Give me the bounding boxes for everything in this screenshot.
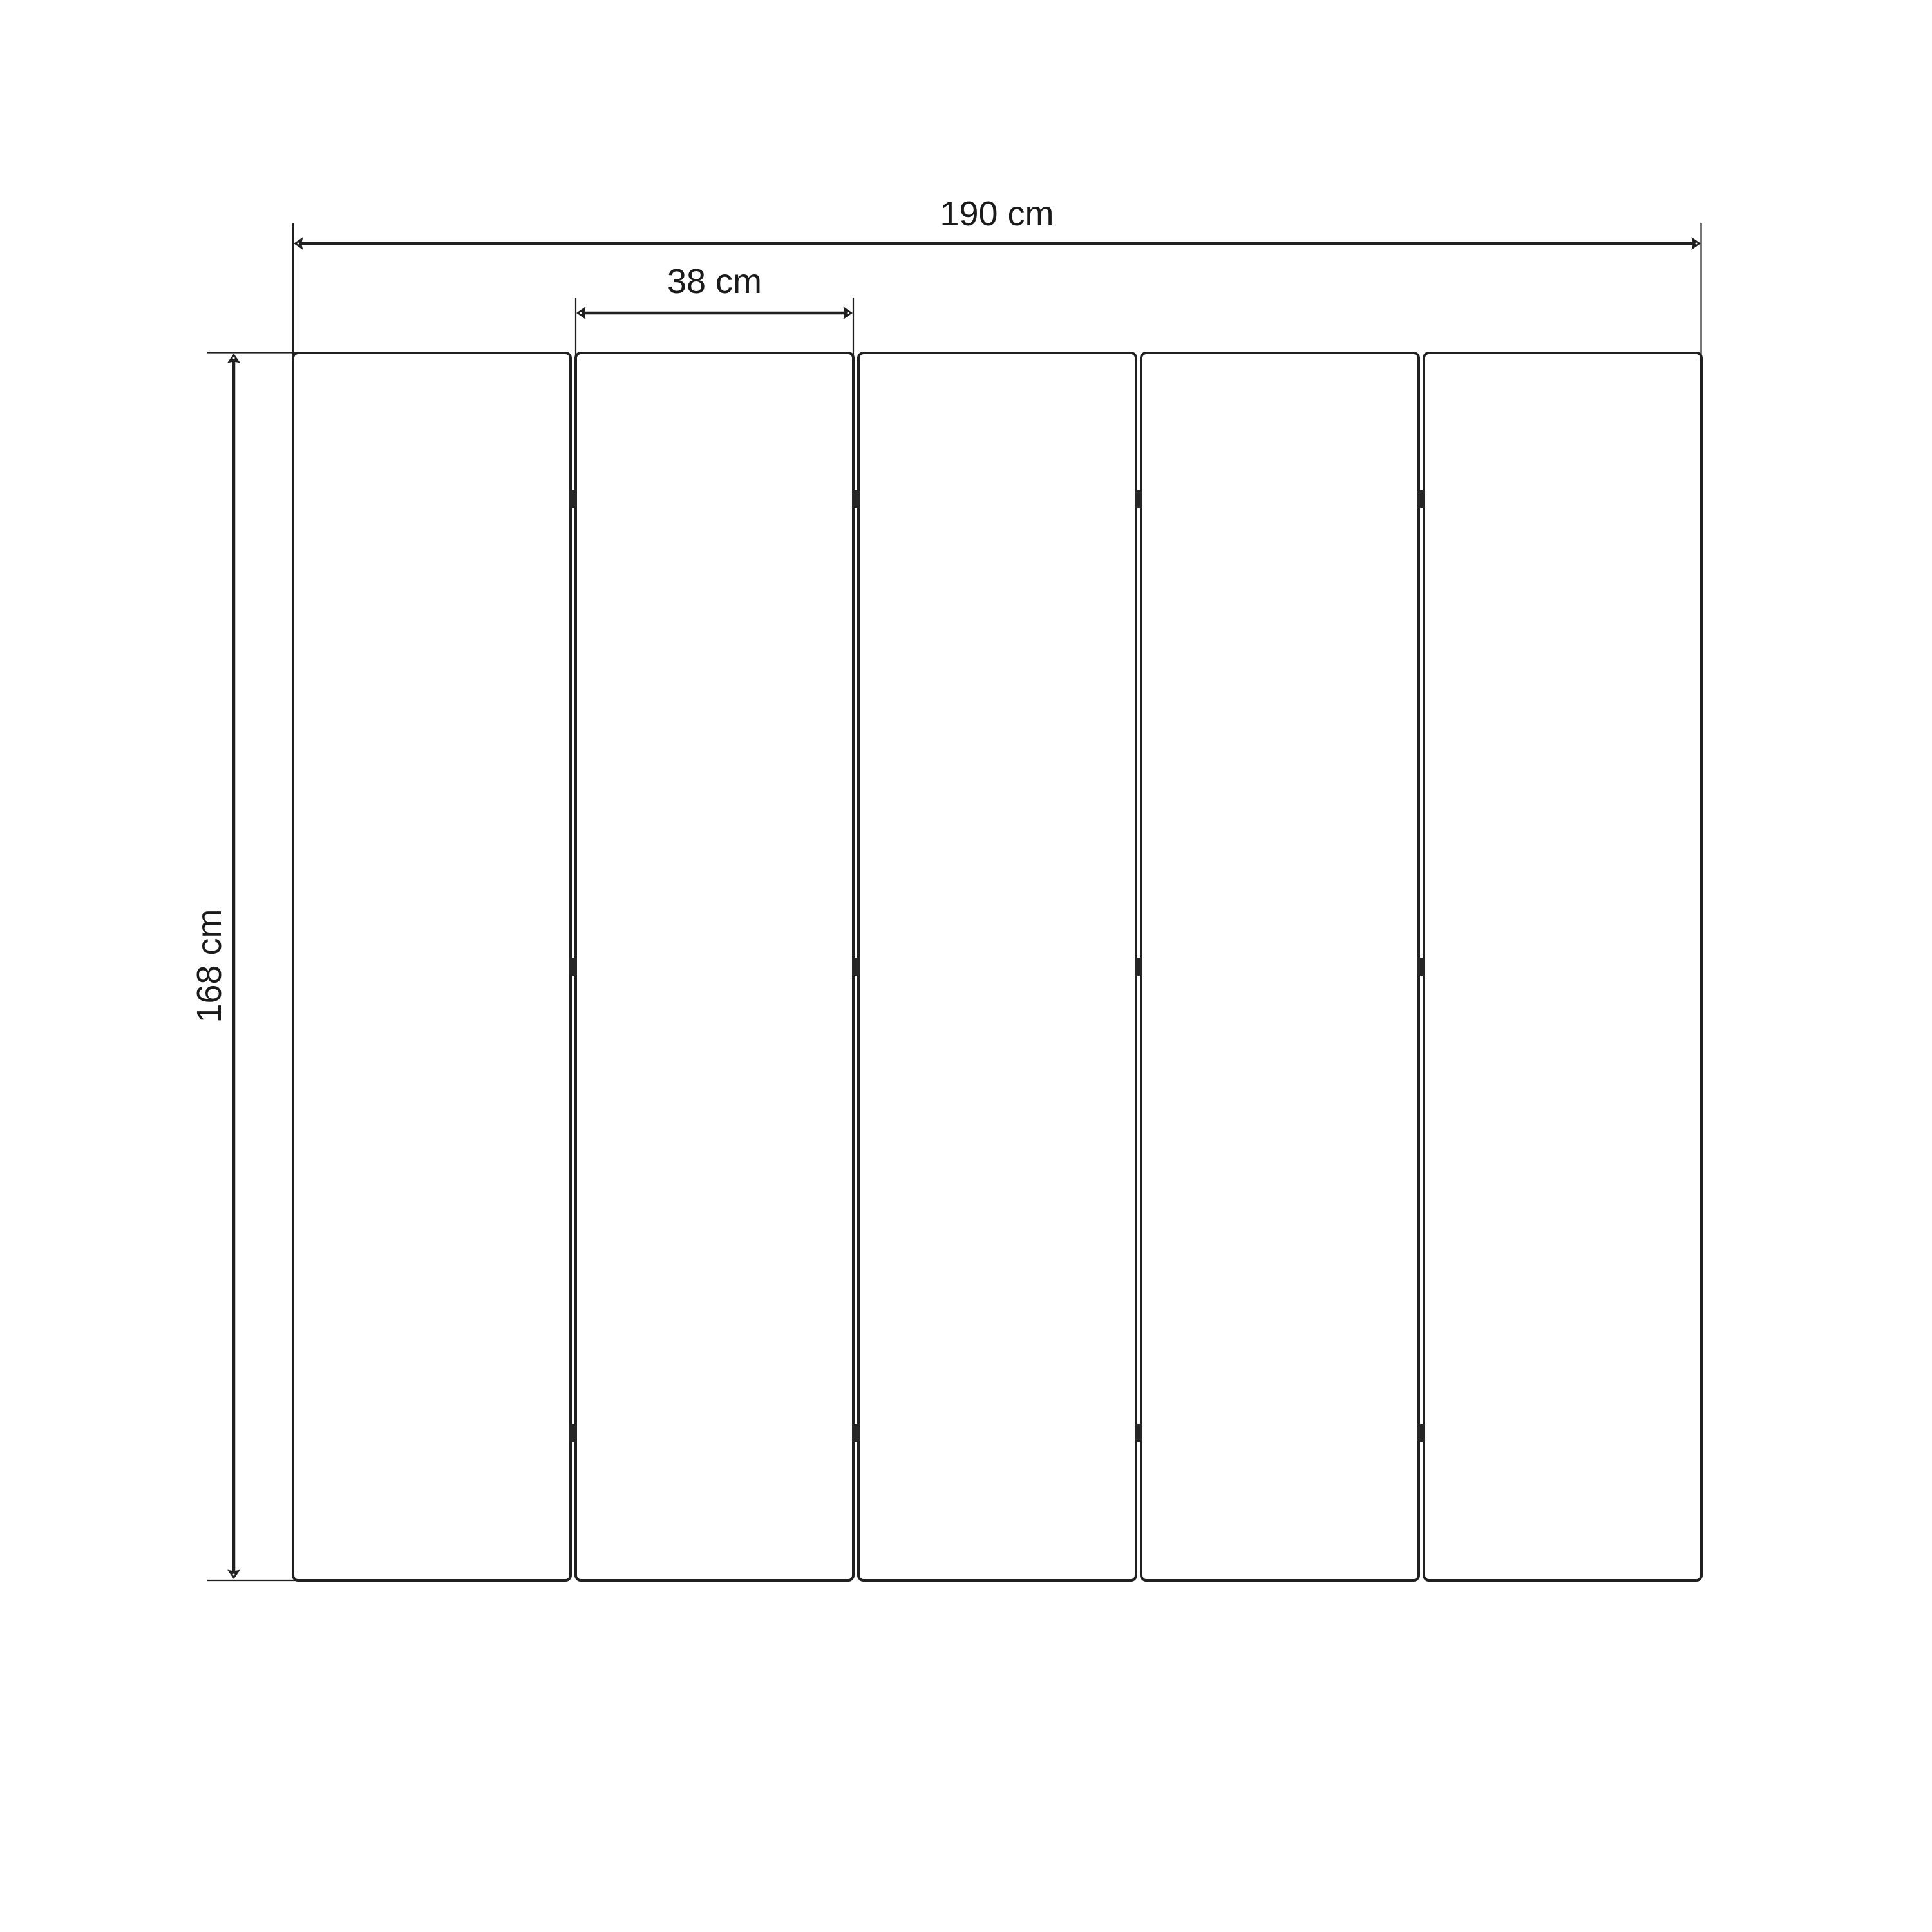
svg-text:168 cm: 168 cm [190, 909, 229, 1023]
svg-text:38 cm: 38 cm [667, 262, 762, 301]
svg-text:190 cm: 190 cm [940, 194, 1054, 233]
